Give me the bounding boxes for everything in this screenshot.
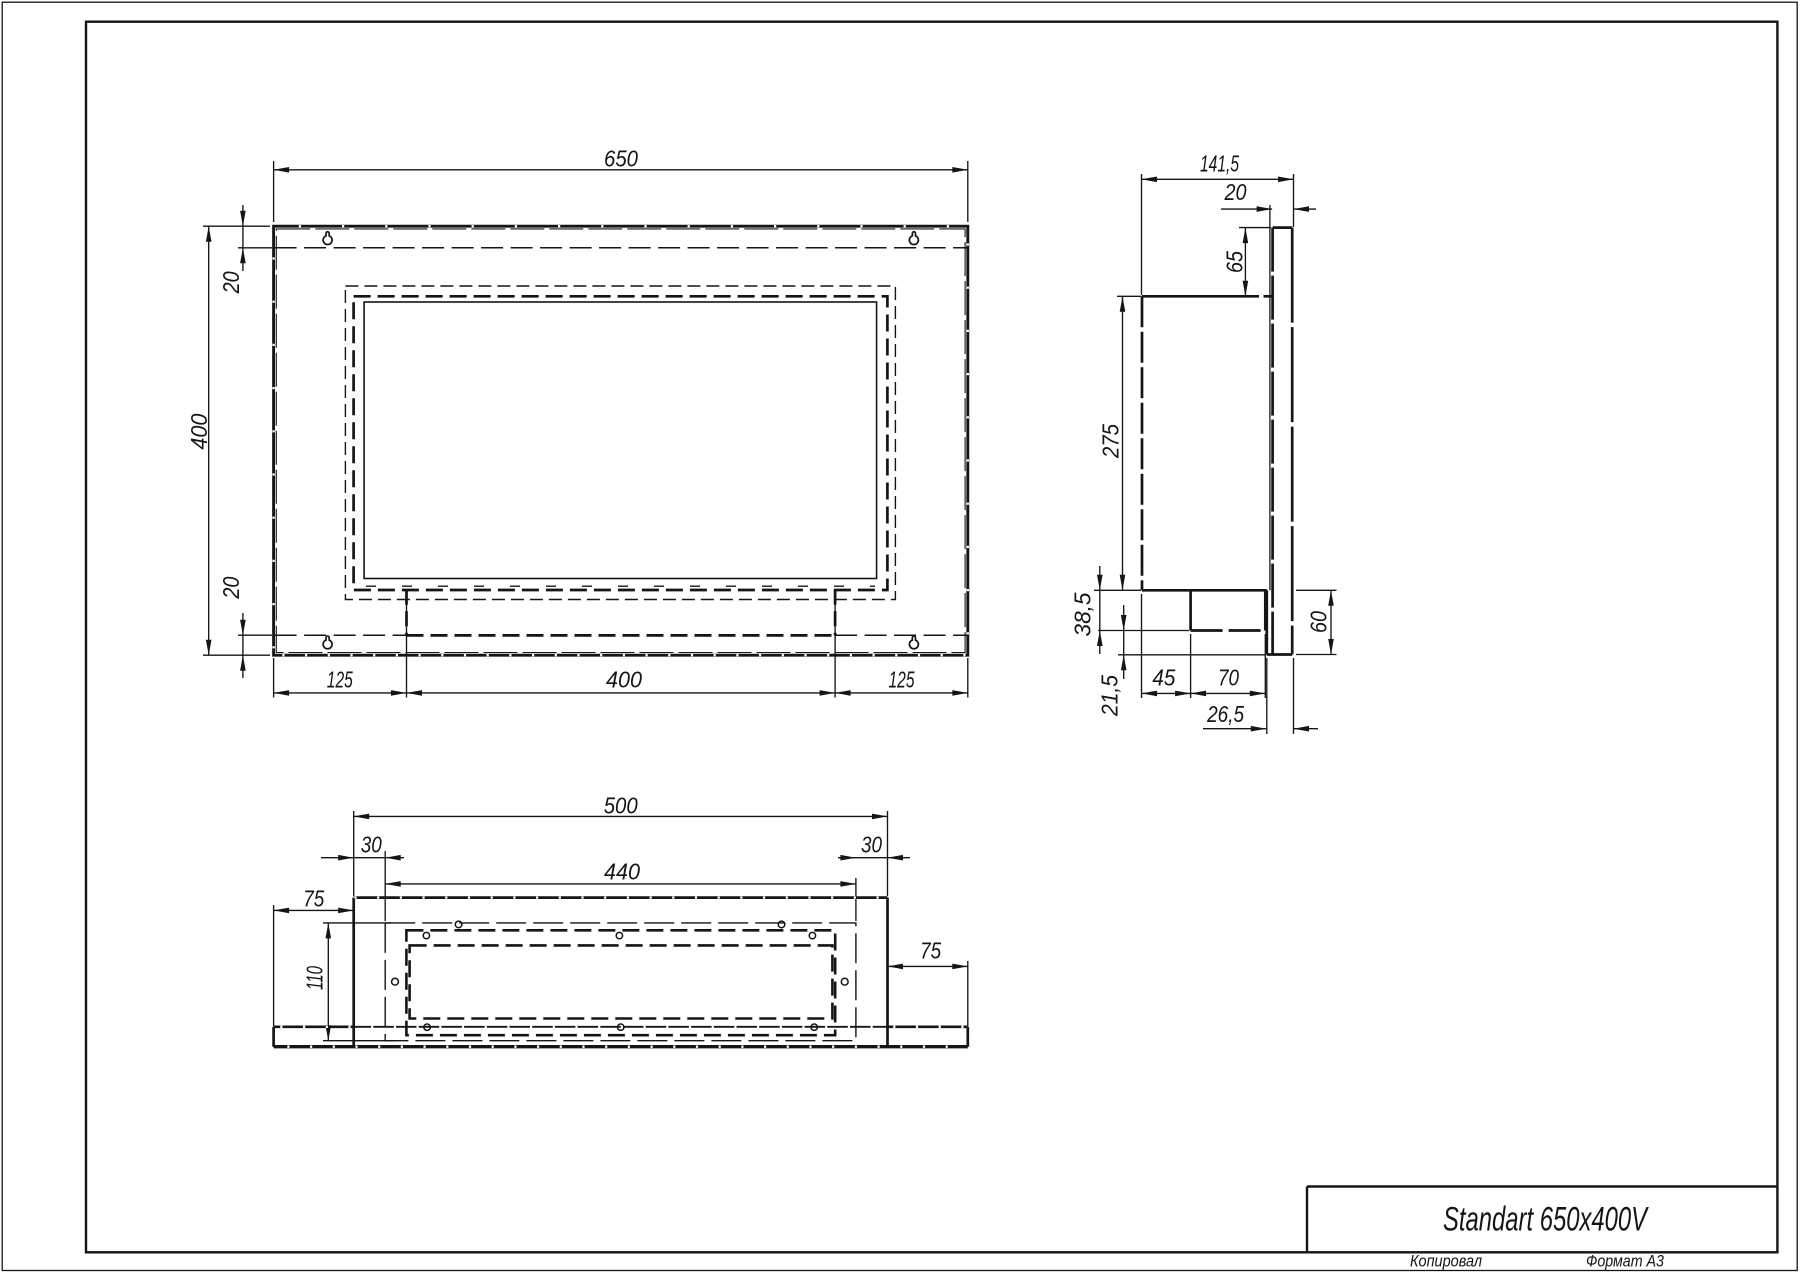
svg-text:125: 125 (889, 667, 915, 693)
svg-text:400: 400 (606, 667, 642, 693)
svg-text:20: 20 (1224, 179, 1247, 205)
svg-text:75: 75 (920, 938, 941, 964)
svg-text:65: 65 (1222, 251, 1248, 273)
svg-text:275: 275 (1098, 424, 1124, 459)
svg-text:45: 45 (1152, 665, 1175, 691)
svg-text:125: 125 (327, 667, 353, 693)
svg-text:60: 60 (1306, 611, 1332, 633)
svg-text:70: 70 (1218, 665, 1239, 691)
svg-text:Standart 650x400V: Standart 650x400V (1443, 1201, 1649, 1239)
svg-text:Формат А3: Формат А3 (1586, 1253, 1665, 1271)
svg-text:20: 20 (218, 271, 244, 294)
svg-text:30: 30 (861, 832, 882, 858)
svg-text:21,5: 21,5 (1097, 675, 1123, 717)
svg-text:650: 650 (604, 146, 638, 172)
svg-text:400: 400 (186, 413, 212, 449)
svg-text:440: 440 (604, 859, 640, 885)
svg-text:Копировал: Копировал (1410, 1253, 1482, 1271)
svg-text:38,5: 38,5 (1070, 592, 1096, 636)
svg-text:500: 500 (604, 793, 638, 819)
svg-text:110: 110 (302, 966, 328, 990)
svg-text:141,5: 141,5 (1200, 151, 1239, 177)
svg-text:30: 30 (361, 832, 382, 858)
svg-text:75: 75 (303, 886, 324, 912)
svg-text:20: 20 (218, 576, 244, 599)
svg-text:26,5: 26,5 (1206, 701, 1244, 727)
